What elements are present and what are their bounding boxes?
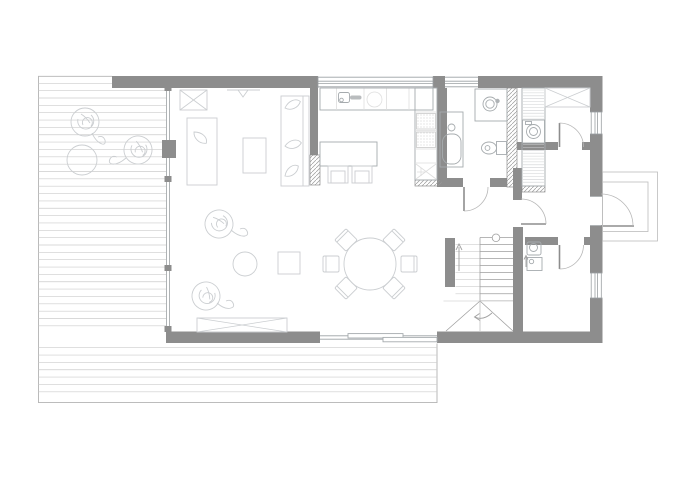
- direction-arrow-turn: [475, 313, 493, 321]
- shelf-column: [523, 90, 544, 119]
- planter-plant: [109, 133, 155, 167]
- dining-chair: [383, 277, 406, 300]
- deck-boards: [39, 83, 167, 326]
- wall-right: [590, 134, 603, 196]
- window-kitchen: [318, 76, 433, 88]
- bathroom: [440, 89, 507, 211]
- sliding-glass-door: [320, 334, 437, 342]
- wc-door: [560, 245, 584, 269]
- shelf-column: [523, 145, 544, 183]
- sofa: [281, 96, 309, 186]
- stair-flight: [480, 238, 513, 301]
- utility-closet: [522, 88, 545, 186]
- wall-right: [590, 88, 603, 112]
- toilet: [482, 142, 507, 155]
- wardrobe-x: [545, 88, 590, 107]
- wall-bottom-right: [437, 332, 603, 344]
- bathroom-door: [464, 187, 488, 211]
- wc-toilet: [527, 258, 542, 271]
- dining-chair: [401, 256, 417, 272]
- daybed: [187, 118, 217, 185]
- facade-mullion: [165, 86, 172, 91]
- dining-area: [323, 229, 417, 300]
- wall-top-left: [112, 76, 318, 88]
- kitchen-end-hatch: [415, 180, 442, 186]
- pendant-light: [227, 90, 260, 97]
- wall-bath-south-pier: [490, 178, 507, 187]
- window-bathroom: [445, 77, 478, 87]
- washbasin: [475, 89, 507, 121]
- pouf: [233, 252, 257, 276]
- direction-arrow-up: [456, 244, 462, 271]
- floor-plan-drawing: [0, 0, 690, 488]
- newel-post: [492, 234, 500, 242]
- wc: [524, 242, 584, 271]
- bar-stool: [328, 166, 348, 183]
- wall-top-right: [478, 76, 603, 88]
- bench-x: [197, 318, 287, 332]
- planter-plant: [187, 277, 234, 315]
- oven-stack: [417, 132, 436, 148]
- windows: [318, 76, 603, 341]
- wall-stairs-west-stub: [445, 238, 455, 287]
- deck-boards: [39, 348, 438, 392]
- closet-end-hatch: [522, 186, 545, 192]
- living-room: [180, 90, 309, 332]
- glass-facade: [162, 86, 176, 332]
- wall-stairs-east: [513, 227, 523, 332]
- bar-stool: [352, 166, 372, 183]
- rug: [243, 138, 266, 173]
- winder-steps: [446, 301, 513, 331]
- kitchen-island: [320, 142, 377, 183]
- wall-right: [590, 226, 603, 273]
- wall-chimney: [310, 88, 318, 155]
- planter-plant: [202, 207, 248, 241]
- wall-bottom-living: [166, 332, 320, 344]
- entrance-door: [590, 194, 634, 226]
- dining-chair: [335, 277, 358, 300]
- floor-plan-canvas: [0, 0, 690, 488]
- dining-chair: [335, 229, 358, 252]
- facade-mullion: [165, 265, 172, 271]
- oven-stack: [417, 114, 436, 130]
- entrance-porch: [603, 172, 658, 241]
- storage-cabinet-x: [180, 90, 207, 110]
- wall-hall-stub: [513, 168, 522, 200]
- wall-wc-north: [525, 237, 558, 245]
- washing-machine: [523, 120, 545, 143]
- closet-door: [560, 123, 584, 147]
- hall-dining-door: [521, 199, 546, 224]
- dining-chair: [323, 256, 339, 272]
- planter-plant: [71, 108, 105, 144]
- facade-mullion: [165, 176, 172, 182]
- wall-kitchen-bath: [437, 88, 447, 178]
- window-wc: [590, 273, 603, 298]
- dining-chair: [383, 229, 406, 252]
- facade-pier: [162, 140, 176, 158]
- facade-mullion: [165, 326, 172, 332]
- chimney-flue-hatch: [310, 155, 320, 185]
- entry-hall: [521, 88, 634, 226]
- plus-mark: [417, 168, 425, 176]
- window-entry: [590, 112, 603, 134]
- side-table: [278, 252, 300, 274]
- porch-steps: [603, 182, 649, 232]
- kitchen: [320, 88, 437, 183]
- wall-top-pillar: [433, 76, 445, 88]
- wall-wc-north-pier: [584, 237, 590, 245]
